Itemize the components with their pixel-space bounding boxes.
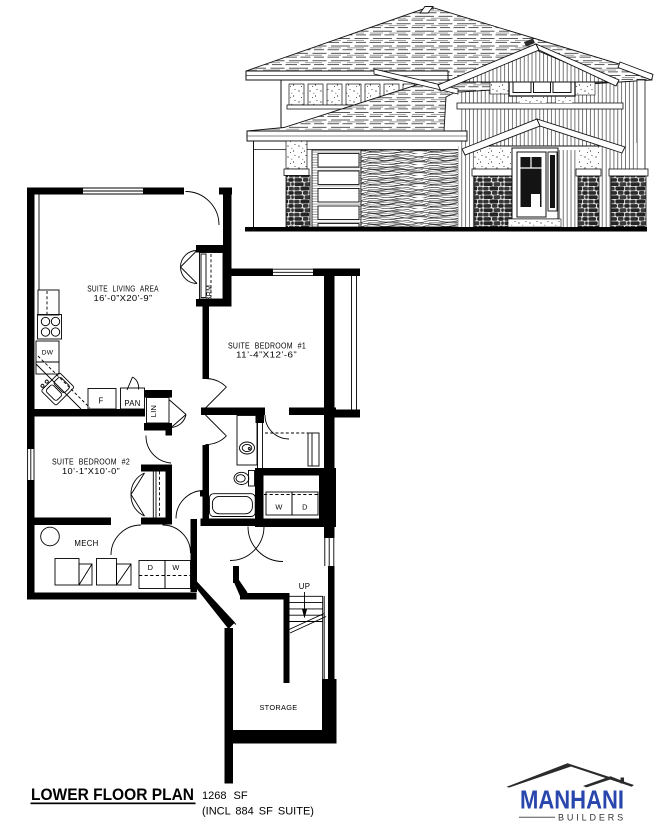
svg-text:11’-4”X12’-6”: 11’-4”X12’-6” xyxy=(236,351,297,360)
svg-text:BRM: BRM xyxy=(207,285,214,301)
svg-text:LIN: LIN xyxy=(149,405,158,417)
svg-text:(INCL 884 SF SUITE): (INCL 884 SF SUITE) xyxy=(202,806,314,818)
svg-text:D: D xyxy=(148,563,154,572)
svg-text:STORAGE: STORAGE xyxy=(259,703,297,712)
svg-text:10’-1”X10’-0”: 10’-1”X10’-0” xyxy=(62,467,120,476)
svg-text:PAN: PAN xyxy=(124,399,140,408)
svg-text:SUITE LIVING AREA: SUITE LIVING AREA xyxy=(87,285,159,294)
svg-text:F: F xyxy=(98,397,103,406)
svg-text:W: W xyxy=(275,503,282,512)
svg-text:SUITE BEDROOM #1: SUITE BEDROOM #1 xyxy=(228,342,306,351)
svg-text:MANHANI: MANHANI xyxy=(520,785,624,815)
svg-text:16’-0”X20’-9”: 16’-0”X20’-9” xyxy=(94,294,153,303)
svg-text:D: D xyxy=(302,503,308,512)
svg-text:DW: DW xyxy=(42,350,54,357)
svg-text:1268 SF: 1268 SF xyxy=(202,790,248,802)
svg-text:UP: UP xyxy=(299,582,310,591)
svg-text:BUILDERS: BUILDERS xyxy=(558,813,626,824)
svg-text:SUITE BEDROOM #2: SUITE BEDROOM #2 xyxy=(52,458,130,467)
svg-text:W: W xyxy=(172,563,179,572)
svg-text:LOWER FLOOR PLAN: LOWER FLOOR PLAN xyxy=(31,786,194,804)
svg-text:MECH: MECH xyxy=(74,539,98,548)
